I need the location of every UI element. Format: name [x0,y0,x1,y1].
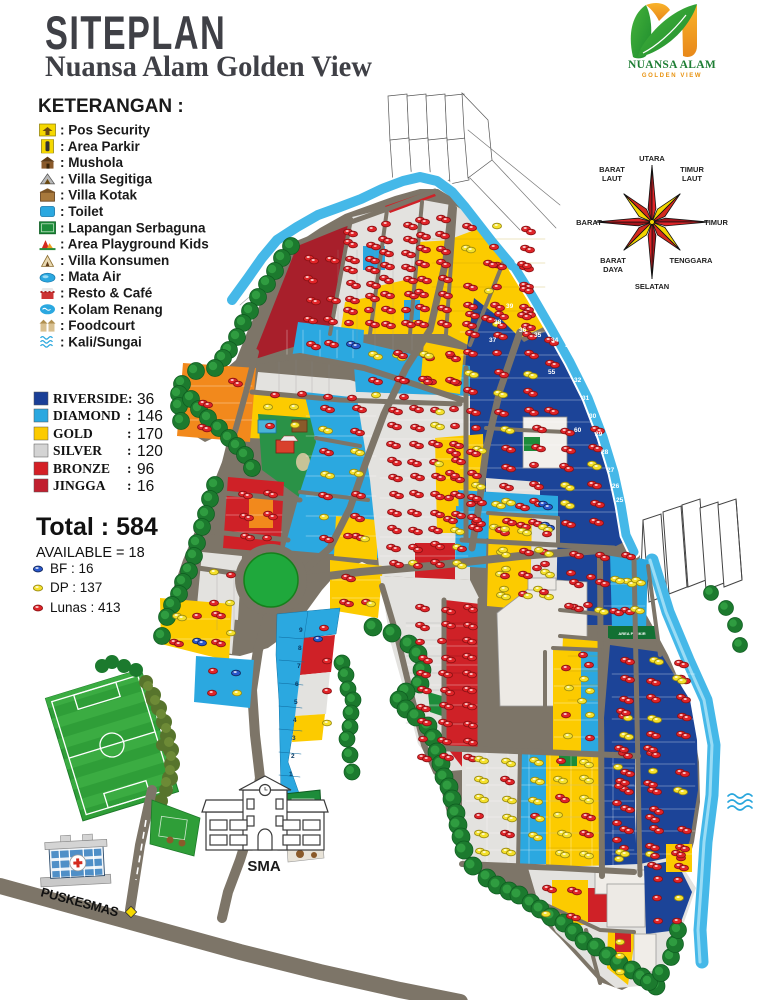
svg-text:LAUT: LAUT [682,174,702,183]
svg-text:3: 3 [292,735,296,742]
svg-text:DAYA: DAYA [603,265,623,274]
svg-text:: Foodcourt: : Foodcourt [60,318,135,333]
svg-text::: : [127,443,132,458]
svg-text:33: 33 [565,342,573,349]
svg-text:BF : 16: BF : 16 [50,561,94,576]
svg-text:1: 1 [289,771,293,778]
svg-text:8: 8 [298,645,302,652]
svg-text:37: 37 [489,337,497,344]
svg-text:TIMUR: TIMUR [704,218,728,227]
svg-text:AVAILABLE = 18: AVAILABLE = 18 [36,545,145,561]
svg-text:JINGGA: JINGGA [53,478,106,493]
svg-text:60: 60 [574,427,582,434]
svg-text:4: 4 [293,717,297,724]
svg-text:2: 2 [291,753,295,760]
svg-text:36: 36 [519,327,527,334]
svg-text:25: 25 [616,497,624,504]
svg-text:TIMUR: TIMUR [680,165,704,174]
svg-text:9: 9 [299,627,303,634]
svg-text:7: 7 [297,663,301,670]
svg-text:BARAT: BARAT [576,218,602,227]
svg-text:BARAT: BARAT [599,165,625,174]
svg-text:GOLDEN VIEW: GOLDEN VIEW [642,73,702,79]
svg-text:Total : 584: Total : 584 [36,513,158,541]
svg-text:SMA: SMA [247,858,281,875]
svg-text::: : [127,426,132,441]
svg-text:28: 28 [601,449,609,456]
svg-text:: Villa Kotak: : Villa Kotak [60,188,138,203]
svg-text::: : [127,461,132,476]
svg-text:5: 5 [294,699,298,706]
svg-text:BARAT: BARAT [600,256,626,265]
svg-text:NUANSA ALAM: NUANSA ALAM [628,59,716,71]
svg-text:DP : 137: DP : 137 [50,580,102,595]
svg-text:SELATAN: SELATAN [635,282,669,291]
svg-text:35: 35 [534,332,542,339]
svg-text:34: 34 [551,337,559,344]
svg-text:170: 170 [137,426,163,443]
svg-text:: Villa Segitiga: : Villa Segitiga [60,171,153,186]
svg-text:LAUT: LAUT [602,174,622,183]
svg-text:32: 32 [574,377,582,384]
svg-text:27: 27 [607,467,615,474]
svg-text:GOLD: GOLD [53,426,93,441]
svg-text:16: 16 [137,478,154,495]
svg-text:RIVERSIDE:: RIVERSIDE: [53,391,133,406]
svg-text:: Pos Security: : Pos Security [60,123,151,138]
svg-text:BRONZE: BRONZE [53,461,110,476]
svg-text:96: 96 [137,461,154,478]
svg-text:: Mata Air: : Mata Air [60,269,122,284]
svg-text:: Lapangan Serbaguna: : Lapangan Serbaguna [60,220,206,235]
svg-text:: Villa Konsumen: : Villa Konsumen [60,253,169,268]
svg-text:38: 38 [494,319,502,326]
svg-text:: Mushola: : Mushola [60,155,123,170]
svg-text:Nuansa Alam Golden View: Nuansa Alam Golden View [45,50,372,83]
svg-text:29: 29 [595,431,603,438]
svg-text::: : [127,408,132,423]
svg-text:SILVER: SILVER [53,443,102,458]
svg-text:39: 39 [506,303,514,310]
svg-text:: Area Parkir: : Area Parkir [60,139,141,154]
svg-text:31: 31 [582,395,590,402]
svg-text:Lunas : 413: Lunas : 413 [50,600,121,615]
svg-text:120: 120 [137,443,163,460]
svg-text:6: 6 [295,681,299,688]
svg-text:146: 146 [137,408,163,425]
svg-text:: Area Playground Kids: : Area Playground Kids [60,237,209,252]
svg-text:TENGGARA: TENGGARA [670,256,714,265]
svg-text:: Kolam Renang: : Kolam Renang [60,302,163,317]
svg-text:26: 26 [612,483,620,490]
svg-text:36: 36 [137,391,154,408]
svg-text::: : [127,478,132,493]
svg-text:AREA PARKIR: AREA PARKIR [618,631,645,636]
svg-text:DIAMOND: DIAMOND [53,408,121,423]
svg-text:UTARA: UTARA [639,154,665,163]
svg-text:: Kali/Sungai: : Kali/Sungai [60,334,142,349]
svg-text:: Toilet: : Toilet [60,204,104,219]
svg-text:KETERANGAN :: KETERANGAN : [38,96,184,117]
svg-text:30: 30 [589,413,597,420]
svg-text:55: 55 [548,369,556,376]
svg-text:: Resto & Café: : Resto & Café [60,286,153,301]
